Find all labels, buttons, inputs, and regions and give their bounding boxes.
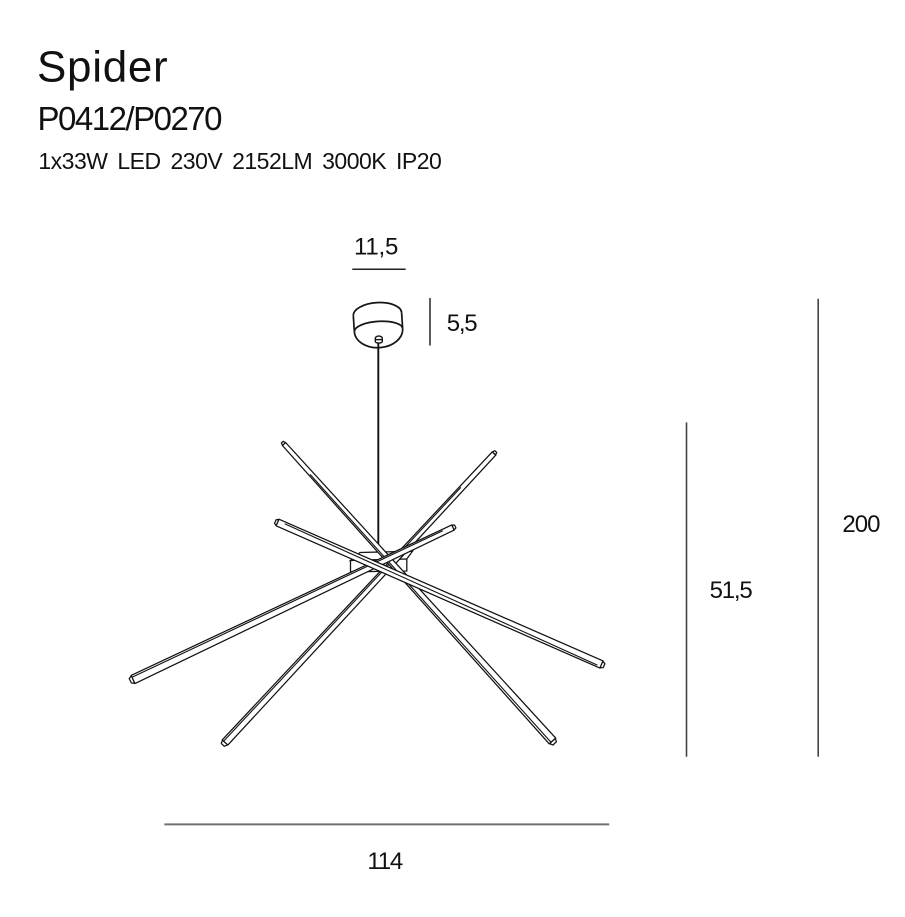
svg-text:Spider: Spider	[37, 43, 168, 92]
svg-text:51,5: 51,5	[710, 577, 753, 604]
svg-text:114: 114	[367, 848, 403, 875]
svg-text:11,5: 11,5	[354, 234, 398, 261]
svg-text:1x33W LED 230V 2152LM 3000K IP: 1x33W LED 230V 2152LM 3000K IP20	[38, 148, 441, 174]
svg-text:200: 200	[842, 511, 880, 538]
svg-text:5,5: 5,5	[447, 310, 478, 337]
svg-text:P0412/P0270: P0412/P0270	[38, 100, 223, 137]
